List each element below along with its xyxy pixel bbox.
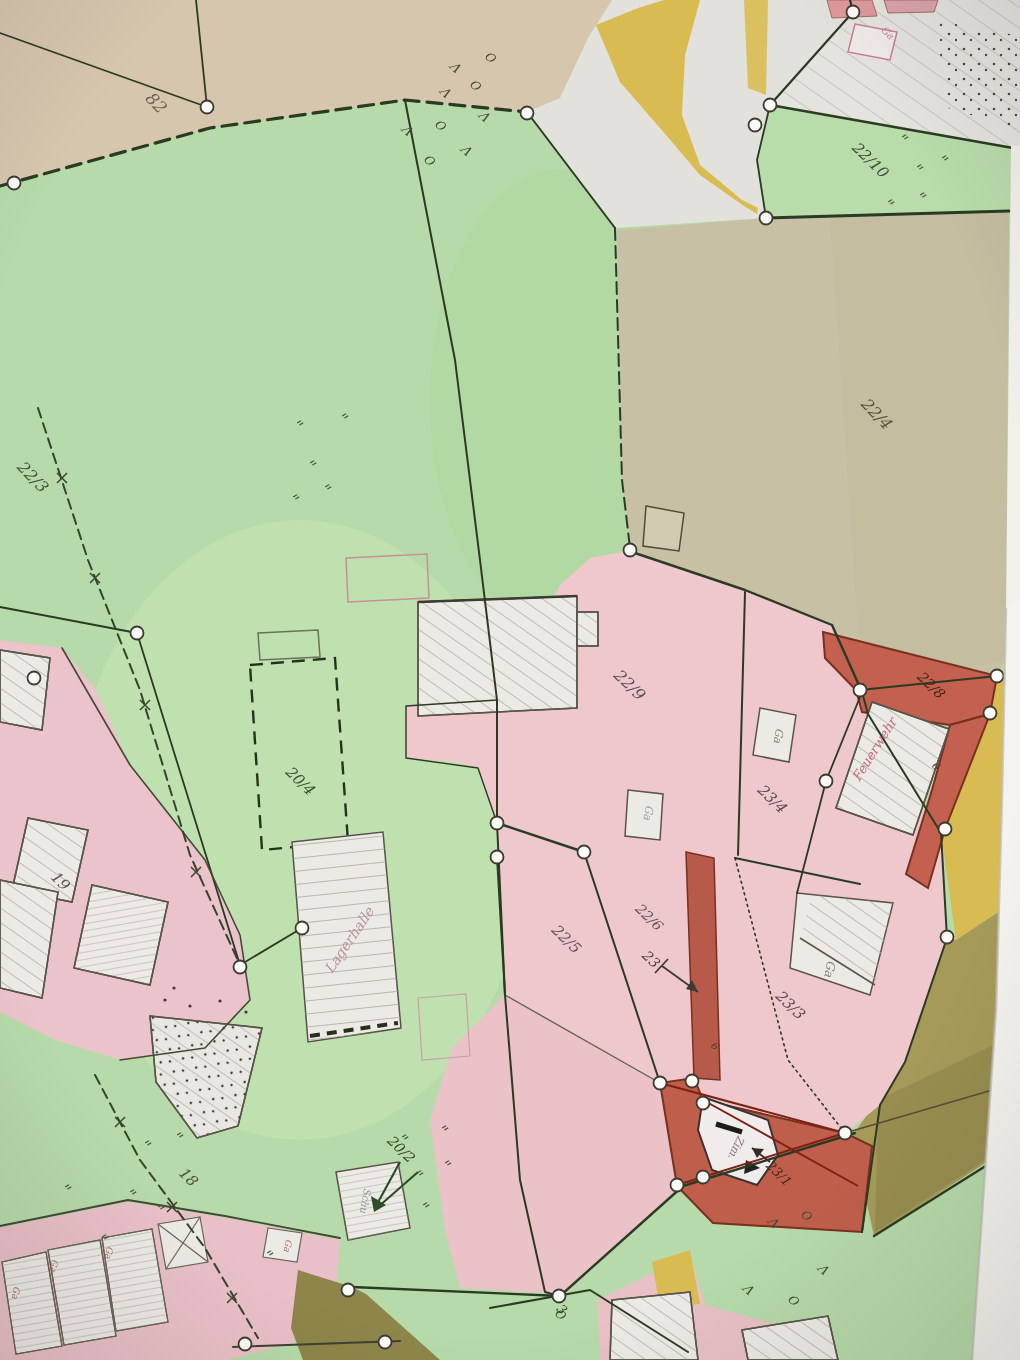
photo-vignette xyxy=(0,0,1020,1360)
map-canvas: """"""""""""""""""""""ΛΛΛΛΛΛΛΛOOOOOOO 82… xyxy=(0,0,1020,1360)
cadastral-map-photo: """"""""""""""""""""""ΛΛΛΛΛΛΛΛOOOOOOO 82… xyxy=(0,0,1020,1360)
